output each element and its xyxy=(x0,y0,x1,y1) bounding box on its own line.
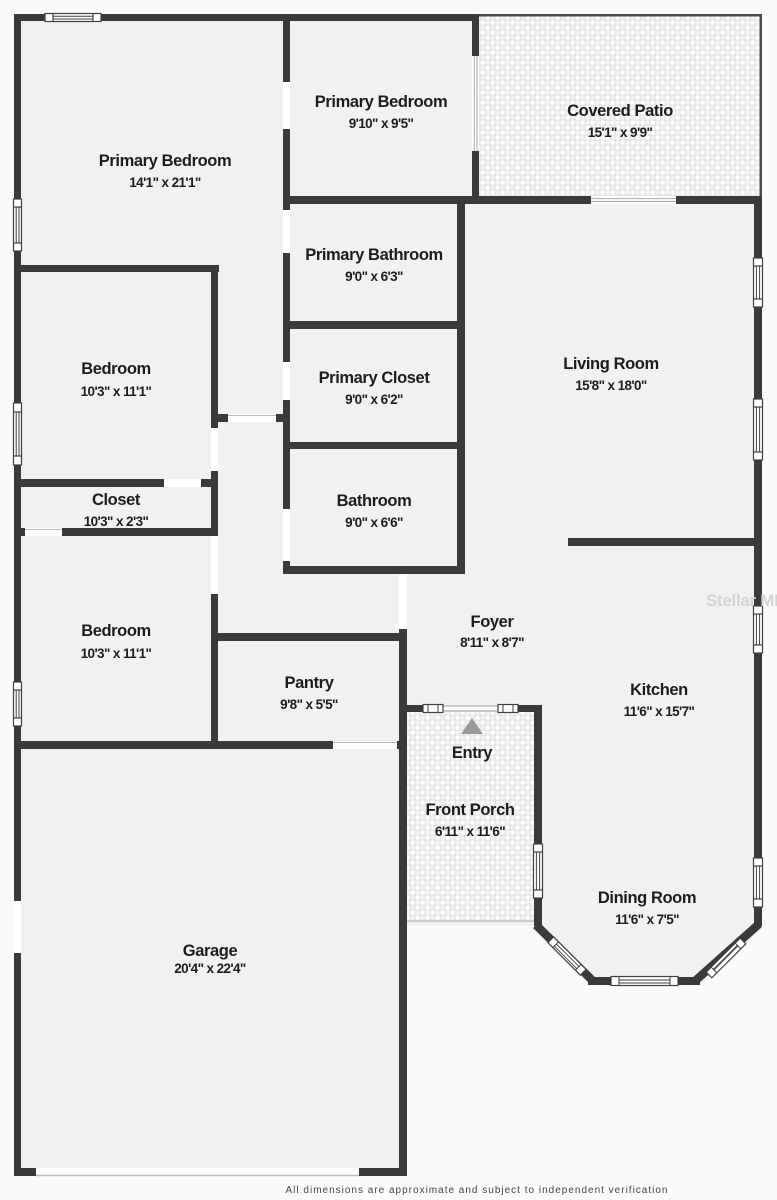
svg-text:Bedroom: Bedroom xyxy=(81,360,151,378)
svg-text:Stellar MLS: Stellar MLS xyxy=(706,591,777,610)
svg-text:9'8" x 5'5": 9'8" x 5'5" xyxy=(280,697,338,712)
svg-text:Bedroom: Bedroom xyxy=(81,622,151,640)
svg-text:11'6" x 7'5": 11'6" x 7'5" xyxy=(615,912,679,927)
svg-text:9'0" x 6'3": 9'0" x 6'3" xyxy=(345,269,403,284)
svg-text:9'10" x 9'5": 9'10" x 9'5" xyxy=(349,116,414,131)
svg-text:Covered Patio: Covered Patio xyxy=(567,102,673,120)
svg-text:15'8" x 18'0": 15'8" x 18'0" xyxy=(575,378,647,393)
svg-text:10'3" x 2'3": 10'3" x 2'3" xyxy=(84,514,149,529)
svg-text:Entry: Entry xyxy=(452,744,493,762)
svg-text:Primary Bathroom: Primary Bathroom xyxy=(305,246,443,264)
svg-text:Garage: Garage xyxy=(183,942,238,960)
svg-text:8'11" x 8'7": 8'11" x 8'7" xyxy=(460,635,524,650)
svg-text:10'3" x 11'1": 10'3" x 11'1" xyxy=(81,384,152,399)
svg-text:9'0" x 6'2": 9'0" x 6'2" xyxy=(345,392,403,407)
svg-text:Bathroom: Bathroom xyxy=(337,492,412,510)
svg-text:All dimensions are approximate: All dimensions are approximate and subje… xyxy=(286,1185,669,1196)
svg-text:9'0" x 6'6": 9'0" x 6'6" xyxy=(345,515,403,530)
svg-text:14'1" x 21'1": 14'1" x 21'1" xyxy=(129,175,201,190)
svg-text:Living Room: Living Room xyxy=(563,355,659,373)
svg-text:Primary Bedroom: Primary Bedroom xyxy=(315,93,447,111)
svg-text:Front Porch: Front Porch xyxy=(425,801,514,819)
svg-text:10'3" x 11'1": 10'3" x 11'1" xyxy=(81,646,152,661)
svg-text:Dining Room: Dining Room xyxy=(598,889,696,907)
svg-text:20'4" x 22'4": 20'4" x 22'4" xyxy=(174,961,246,976)
svg-text:Kitchen: Kitchen xyxy=(630,681,688,699)
svg-text:Primary Closet: Primary Closet xyxy=(319,369,431,387)
svg-text:6'11" x 11'6": 6'11" x 11'6" xyxy=(435,824,505,839)
svg-text:15'1" x 9'9": 15'1" x 9'9" xyxy=(588,125,653,140)
svg-text:Foyer: Foyer xyxy=(471,613,515,631)
svg-text:Pantry: Pantry xyxy=(285,674,335,692)
svg-text:11'6" x 15'7": 11'6" x 15'7" xyxy=(624,704,695,719)
svg-text:Primary Bedroom: Primary Bedroom xyxy=(99,152,231,170)
svg-text:Closet: Closet xyxy=(92,491,141,509)
